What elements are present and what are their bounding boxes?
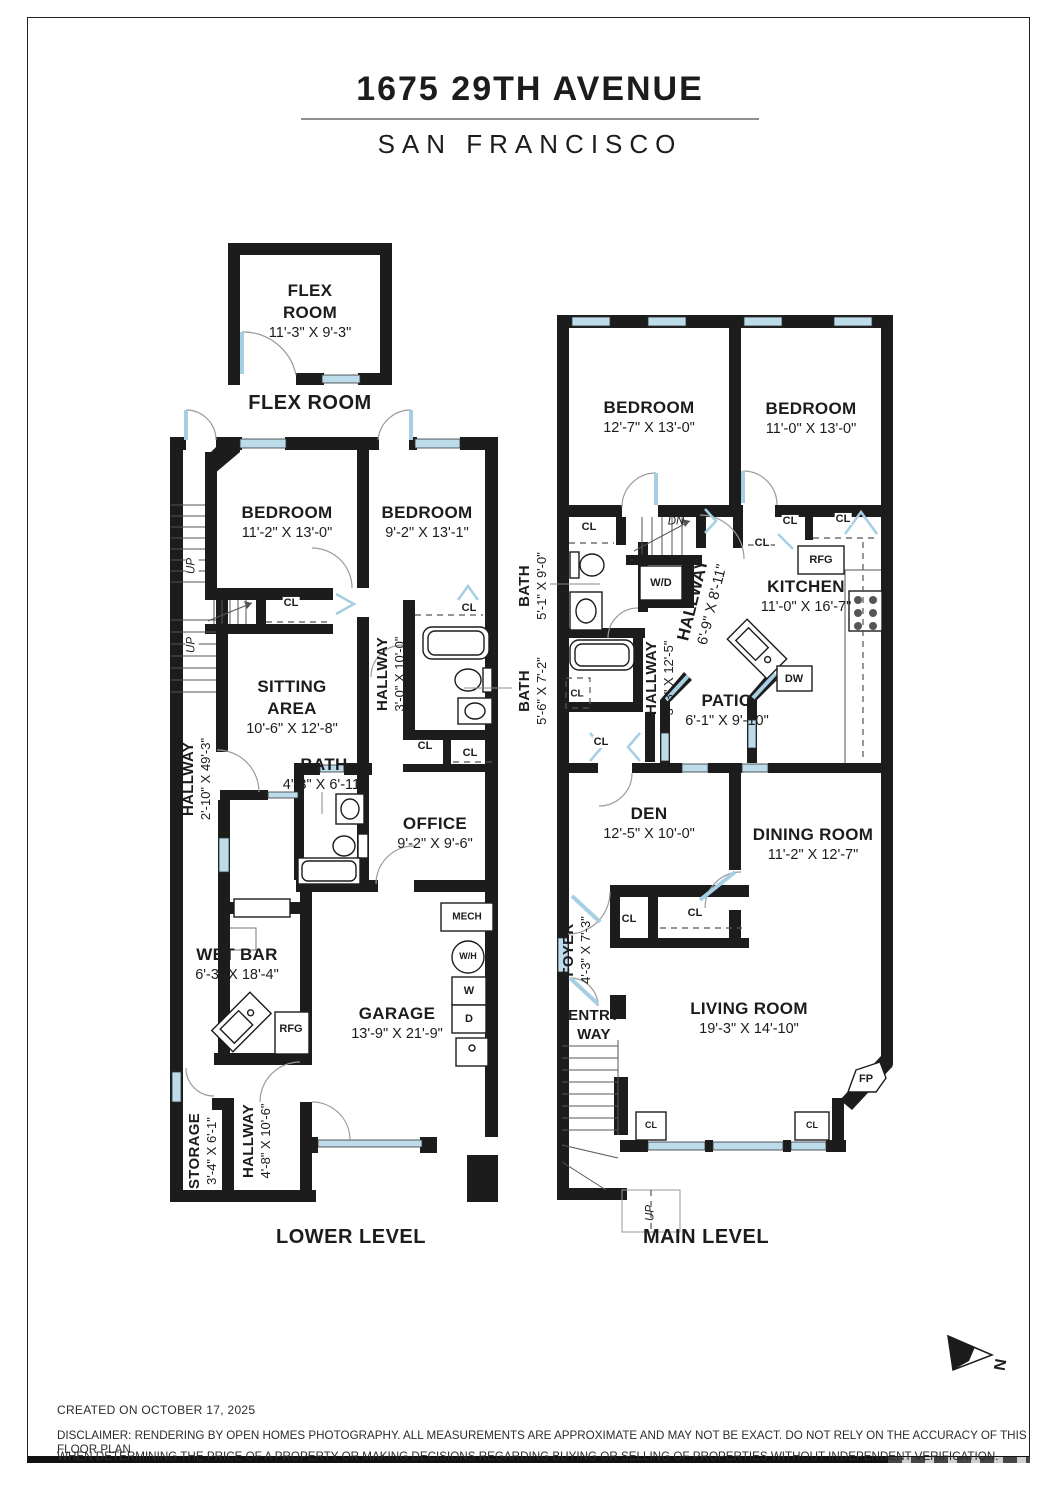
room-label-foyer: FOYER 4'-3" X 7'-3"	[559, 916, 595, 984]
water-heater-label: W/H	[458, 952, 478, 962]
toilet-icon	[570, 552, 579, 578]
room-label-bath-upper: BATH 5'-1" X 9'-0"	[515, 552, 551, 620]
room-label-office: OFFICE 9'-2" X 9'-6"	[397, 813, 472, 853]
room-label-living: LIVING ROOM 19'-3" X 14'-10"	[690, 998, 808, 1038]
washer-dryer-label: W/D	[649, 577, 672, 589]
stairs-up-label: UP	[645, 1204, 658, 1222]
room-label-hallway-side: HALLWAY 2'-10" X 49'-3"	[179, 738, 215, 820]
room-label-storage: STORAGE 3'-4" X 6'-1"	[185, 1113, 221, 1189]
refrigerator-label: RFG	[278, 1023, 303, 1035]
closet-label: CL	[569, 689, 584, 700]
laundry-sink-icon	[456, 1038, 488, 1066]
caption-main-level: MAIN LEVEL	[643, 1226, 769, 1249]
room-label-garage: GARAGE 13'-9" X 21'-9"	[351, 1003, 443, 1043]
room-label-hallway-mid: HALLWAY 3'-0" X 10'-0"	[373, 637, 409, 712]
cased-opening	[234, 899, 290, 917]
room-label-bedroom-main-left: BEDROOM 12'-7" X 13'-0"	[603, 397, 695, 437]
room-label-bath-lower-main: BATH 5'-6" X 7'-2"	[515, 657, 551, 725]
closet-label: CL	[283, 597, 300, 609]
closet-label: CL	[581, 521, 598, 533]
closet-label: CL	[461, 602, 478, 614]
room-label-entry-way: ENTRY WAY	[568, 1006, 620, 1044]
room-label-bedroom-lower-left: BEDROOM 11'-2" X 13'-0"	[242, 502, 333, 542]
closet-label: CL	[462, 747, 479, 759]
floorplan-page: 1675 29TH AVENUE SAN FRANCISCO	[0, 0, 1060, 1498]
room-label-bath-lower: BATH 4'-3" X 6'-11"	[283, 754, 365, 794]
stairs-up-label: UP	[186, 636, 199, 654]
room-label-hallway-lower-main: HALLWAY 3'-3" X 12'-5"	[642, 641, 678, 716]
stove-icon	[849, 591, 882, 631]
dishwasher-label: DW	[784, 673, 804, 685]
room-label-hallway-bottom: HALLWAY 4'-8" X 10'-6"	[239, 1104, 275, 1179]
refrigerator-label: RFG	[808, 554, 833, 566]
stairs-up-label: UP	[186, 557, 199, 575]
closet-label: CL	[782, 515, 799, 527]
floorplan-drawing: N	[0, 0, 1060, 1498]
room-label-den: DEN 12'-5" X 10'-0"	[603, 803, 695, 843]
room-label-kitchen: KITCHEN 11'-0" X 16'-7"	[761, 576, 852, 616]
closet-label: CL	[417, 740, 434, 752]
created-date-text: CREATED ON OCTOBER 17, 2025	[57, 1403, 255, 1417]
room-label-patio: PATIO 6'-1" X 9'-10"	[685, 690, 769, 730]
room-label-dining: DINING ROOM 11'-2" X 12'-7"	[753, 824, 873, 864]
closet-label: CL	[644, 1121, 658, 1131]
closet-label: CL	[754, 537, 771, 549]
mech-label: MECH	[451, 912, 482, 923]
caption-flex-room: FLEX ROOM	[248, 392, 371, 415]
toilet-icon	[358, 834, 368, 858]
room-label-sitting-area: SITTING AREA 10'-6" X 12'-8"	[246, 676, 338, 738]
dryer-label: D	[464, 1013, 474, 1025]
stairs-down-label: DN	[667, 516, 686, 529]
caption-lower-level: LOWER LEVEL	[276, 1226, 426, 1249]
room-label-wet-bar: WET BAR 6'-3" X 18'-4"	[195, 944, 279, 984]
room-label-bedroom-lower-right: BEDROOM 9'-2" X 13'-1"	[382, 502, 473, 542]
room-label-flex: FLEX ROOM 11'-3" X 9'-3"	[269, 280, 351, 342]
compass-north-label: N	[990, 1357, 1009, 1371]
fireplace-label: FP	[858, 1073, 874, 1085]
room-label-bedroom-main-right: BEDROOM 11'-0" X 13'-0"	[766, 398, 857, 438]
closet-label: CL	[835, 513, 852, 525]
washer-label: W	[463, 985, 475, 997]
compass-north-icon: N	[948, 1336, 1008, 1372]
closet-label: CL	[687, 907, 704, 919]
closet-label: CL	[593, 736, 610, 748]
closet-label: CL	[621, 913, 638, 925]
closet-label: CL	[805, 1121, 819, 1131]
disclaimer-line-2: WHEN DETERMINING THE PRICE OF A PROPERTY…	[57, 1449, 998, 1463]
